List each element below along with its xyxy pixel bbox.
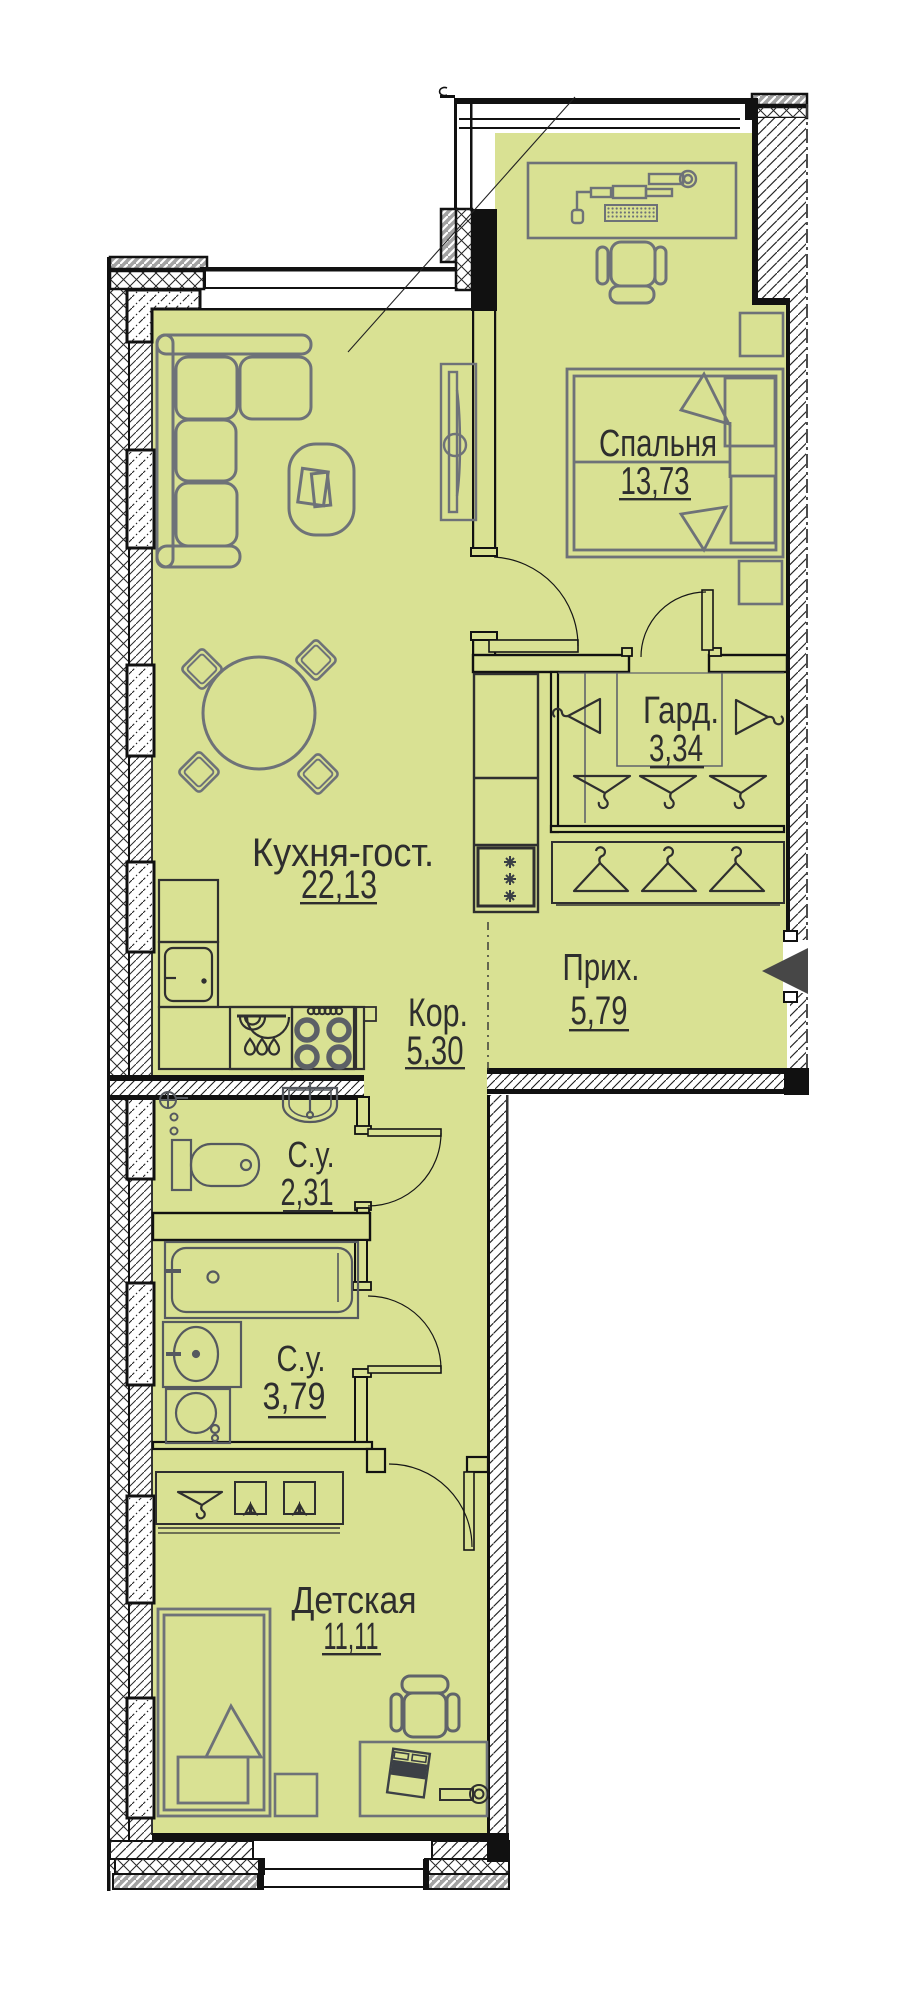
svg-text:Спальня: Спальня [599,423,717,465]
svg-text:5,79: 5,79 [571,989,628,1033]
svg-text:3,79: 3,79 [263,1376,326,1418]
svg-text:11,11: 11,11 [324,1616,379,1658]
svg-text:5,30: 5,30 [407,1029,464,1073]
svg-text:Гард.: Гард. [643,690,719,732]
svg-text:Прих.: Прих. [563,947,640,989]
svg-text:3,34: 3,34 [649,728,703,770]
svg-text:13,73: 13,73 [621,460,690,503]
svg-text:С.у.: С.у. [277,1338,326,1379]
svg-text:22,13: 22,13 [301,863,377,907]
svg-text:С.у.: С.у. [288,1134,335,1175]
svg-text:2,31: 2,31 [281,1172,334,1214]
